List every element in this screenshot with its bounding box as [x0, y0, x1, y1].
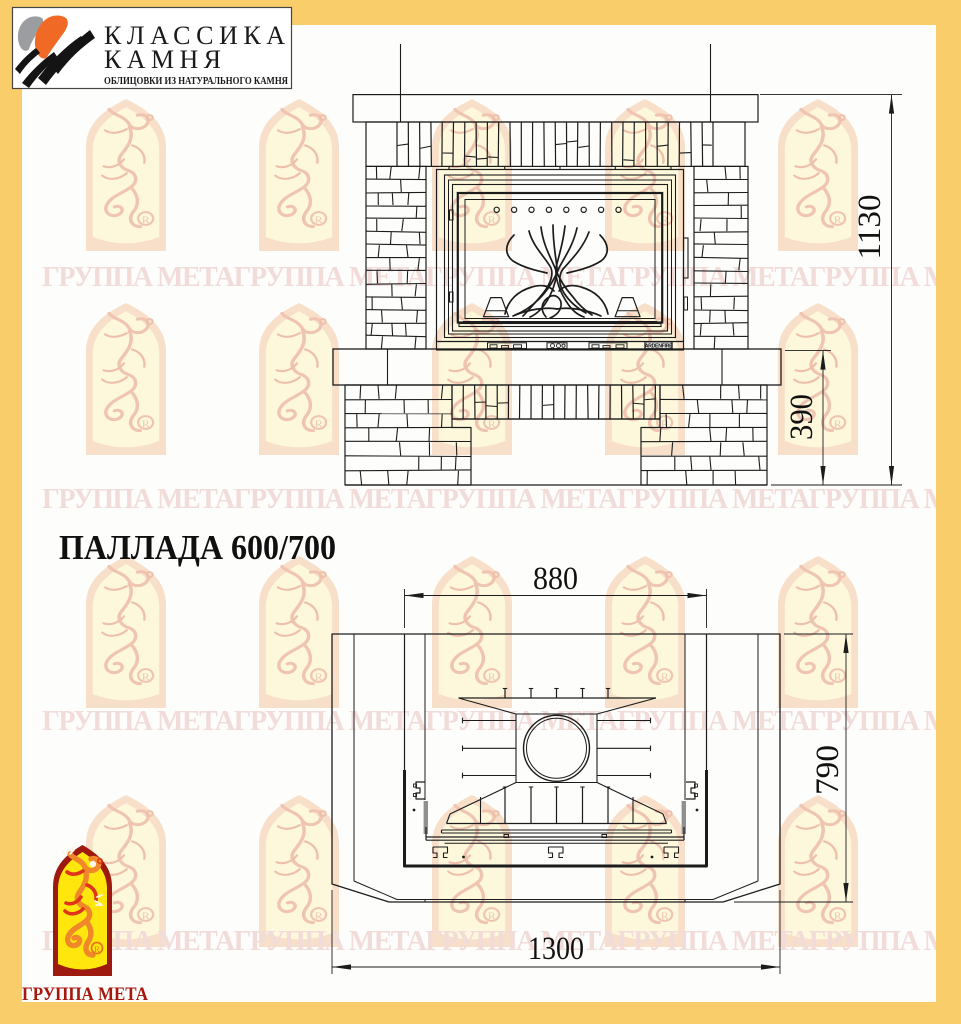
- svg-text:R: R: [142, 672, 151, 683]
- svg-text:ГРУППА МЕТАГРУППА МЕТАГРУППА М: ГРУППА МЕТАГРУППА МЕТАГРУППА МЕТАГРУППА …: [42, 926, 961, 957]
- svg-text:R: R: [488, 672, 497, 683]
- svg-text:R: R: [661, 911, 670, 922]
- svg-text:R: R: [661, 419, 670, 430]
- svg-text:R: R: [315, 672, 324, 683]
- svg-text:R: R: [315, 911, 324, 922]
- svg-text:R: R: [834, 215, 843, 226]
- svg-text:1300: 1300: [528, 931, 584, 967]
- svg-text:R: R: [834, 911, 843, 922]
- svg-text:R: R: [142, 215, 151, 226]
- svg-text:ГРУППА МЕТАГРУППА МЕТАГРУППА М: ГРУППА МЕТАГРУППА МЕТАГРУППА МЕТАГРУППА …: [42, 484, 961, 515]
- svg-text:R: R: [142, 911, 151, 922]
- svg-text:ГРУППА МЕТАГРУППА МЕТАГРУППА М: ГРУППА МЕТАГРУППА МЕТАГРУППА МЕТАГРУППА …: [42, 262, 961, 293]
- svg-text:390: 390: [784, 394, 820, 440]
- svg-text:R: R: [142, 419, 151, 430]
- svg-text:R: R: [661, 672, 670, 683]
- svg-text:ГРУППА МЕТАГРУППА МЕТАГРУППА М: ГРУППА МЕТАГРУППА МЕТАГРУППА МЕТАГРУППА …: [42, 706, 961, 737]
- svg-text:R: R: [488, 419, 497, 430]
- svg-text:R: R: [315, 215, 324, 226]
- svg-text:ОБЛИЦОВКИ ИЗ НАТУРАЛЬНОГО КАМН: ОБЛИЦОВКИ ИЗ НАТУРАЛЬНОГО КАМНЯ: [104, 76, 288, 87]
- svg-text:R: R: [315, 419, 324, 430]
- svg-text:1130: 1130: [852, 195, 888, 260]
- svg-text:880: 880: [533, 561, 578, 597]
- svg-text:R: R: [834, 672, 843, 683]
- svg-text:R: R: [488, 911, 497, 922]
- svg-text:R: R: [94, 944, 100, 954]
- svg-text:ГРУППА МЕТА: ГРУППА МЕТА: [22, 985, 149, 1005]
- svg-text:R: R: [488, 215, 497, 226]
- svg-text:ПАЛЛАДА 600/700: ПАЛЛАДА 600/700: [59, 529, 336, 567]
- svg-text:790: 790: [810, 745, 846, 795]
- svg-text:R: R: [834, 419, 843, 430]
